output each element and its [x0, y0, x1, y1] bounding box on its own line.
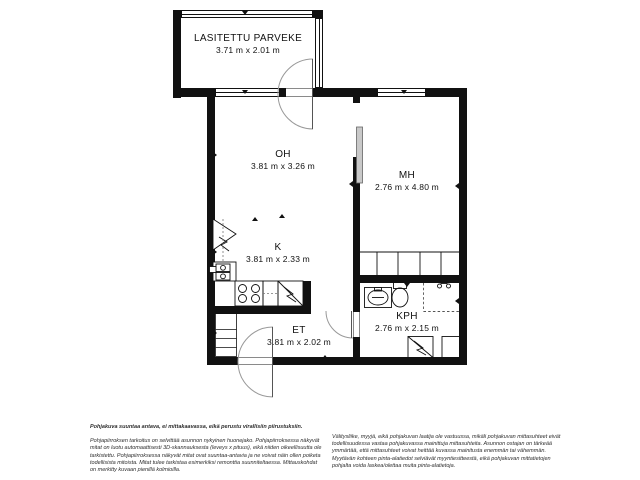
room-label-bedroom: MH 2.76 m x 4.80 m	[337, 170, 477, 192]
room-dimensions: 3.81 m x 2.02 m	[229, 337, 369, 347]
floor-plan: LASITETTU PARVEKE 3.71 m x 2.01 m OH 3.8…	[0, 0, 640, 480]
room-dimensions: 3.81 m x 3.26 m	[213, 161, 353, 171]
bathroom-sink	[365, 288, 392, 308]
bathroom-cabinet	[442, 337, 460, 358]
fixtures-layer	[0, 0, 640, 480]
shower-area	[424, 278, 461, 312]
disclaimer-left-paragraph: Pohjapiirroksen tarkoitus on selvittää a…	[90, 438, 322, 474]
kitchen-dishwasher	[263, 281, 303, 306]
room-name: LASITETTU PARVEKE	[178, 33, 318, 44]
room-name: ET	[229, 325, 369, 336]
toilet	[392, 283, 408, 308]
room-dimensions: 3.71 m x 2.01 m	[178, 45, 318, 55]
disclaimer-right-paragraph: Välitysliike, myyjä, eikä pohjakuvan laa…	[332, 434, 564, 470]
room-dimensions: 3.81 m x 2.33 m	[208, 254, 348, 264]
room-label-living-room: OH 3.81 m x 3.26 m	[213, 149, 353, 171]
room-name: MH	[337, 170, 477, 181]
disclaimer-left: Pohjakuva suuntaa antava, ei mittakaavas…	[90, 424, 322, 474]
washing-machine	[408, 337, 433, 358]
room-name: OH	[213, 149, 353, 160]
room-label-entrance: ET 3.81 m x 2.02 m	[229, 325, 369, 347]
bedroom-wardrobe	[360, 252, 459, 275]
kitchen-oven-unit	[210, 262, 237, 281]
room-dimensions: 2.76 m x 4.80 m	[337, 182, 477, 192]
room-name: KPH	[337, 311, 477, 322]
disclaimer-right: Välitysliike, myyjä, eikä pohjakuvan laa…	[332, 434, 564, 470]
kitchen-stove	[235, 281, 263, 306]
room-label-kitchen: K 3.81 m x 2.33 m	[208, 242, 348, 264]
balcony-door-swing	[278, 59, 313, 129]
room-name: K	[208, 242, 348, 253]
disclaimer-heading: Pohjakuva suuntaa antava, ei mittakaavas…	[90, 424, 322, 431]
room-label-balcony: LASITETTU PARVEKE 3.71 m x 2.01 m	[178, 33, 318, 55]
